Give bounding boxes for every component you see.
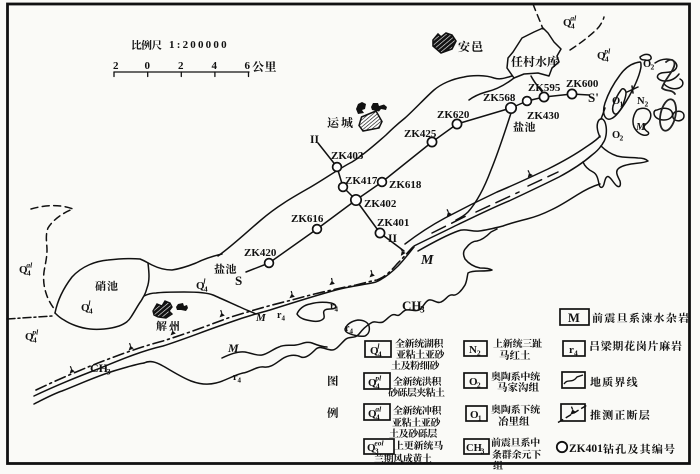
svg-text:2: 2 xyxy=(178,60,184,72)
svg-text:ZK403: ZK403 xyxy=(331,150,364,162)
svg-text:2: 2 xyxy=(620,134,624,143)
svg-text:ZK420: ZK420 xyxy=(244,247,277,259)
svg-text:M: M xyxy=(255,312,267,324)
svg-text:4: 4 xyxy=(27,269,31,278)
svg-text:3: 3 xyxy=(420,305,425,315)
svg-text:4: 4 xyxy=(238,377,242,385)
svg-text:4: 4 xyxy=(605,55,609,64)
svg-text:2: 2 xyxy=(645,100,649,109)
svg-text:M: M xyxy=(568,311,580,325)
svg-text:al: al xyxy=(26,261,33,270)
svg-text:ZK568: ZK568 xyxy=(483,92,516,104)
svg-text:S: S xyxy=(235,273,242,288)
svg-text:ZK417: ZK417 xyxy=(345,175,378,187)
svg-text:ZK430: ZK430 xyxy=(527,110,560,122)
svg-text:al: al xyxy=(375,405,382,414)
svg-text:4: 4 xyxy=(33,336,37,345)
svg-text:ZK402: ZK402 xyxy=(364,198,397,210)
svg-text:2: 2 xyxy=(477,349,481,358)
svg-text:pl: pl xyxy=(374,374,382,383)
svg-text:4: 4 xyxy=(378,350,382,359)
svg-text:4: 4 xyxy=(89,307,93,316)
svg-text:4: 4 xyxy=(376,413,380,422)
svg-text:1: 1 xyxy=(478,414,482,423)
svg-text:CH: CH xyxy=(466,443,482,454)
svg-text:2: 2 xyxy=(651,63,655,72)
svg-text:1: 1 xyxy=(620,100,624,109)
svg-text:0: 0 xyxy=(145,60,151,72)
svg-text:ZK600: ZK600 xyxy=(566,78,599,90)
svg-text:M: M xyxy=(227,341,239,355)
svg-text:4: 4 xyxy=(574,349,578,358)
svg-text:ZK425: ZK425 xyxy=(404,128,437,140)
svg-text:pl: pl xyxy=(603,47,611,56)
svg-text:ZK620: ZK620 xyxy=(437,109,470,121)
svg-text:4: 4 xyxy=(204,285,208,294)
svg-text:M: M xyxy=(420,253,434,268)
svg-text:eol: eol xyxy=(374,439,384,448)
svg-text:S': S' xyxy=(588,90,599,105)
svg-text:2: 2 xyxy=(477,381,481,390)
svg-text:3: 3 xyxy=(107,368,111,377)
svg-text:4: 4 xyxy=(376,382,380,391)
svg-text:4: 4 xyxy=(212,60,218,72)
svg-text:1:200000: 1:200000 xyxy=(169,39,229,51)
svg-text:4: 4 xyxy=(350,328,354,336)
svg-text:ZK618: ZK618 xyxy=(389,179,422,191)
svg-text:6: 6 xyxy=(245,60,251,72)
svg-text:ZK595: ZK595 xyxy=(528,82,561,94)
svg-text:M: M xyxy=(635,122,646,133)
svg-text:N: N xyxy=(469,344,477,356)
svg-text:II: II xyxy=(388,233,397,245)
svg-text:pl: pl xyxy=(31,328,39,337)
svg-text:3: 3 xyxy=(481,447,485,456)
svg-text:2: 2 xyxy=(113,60,119,72)
svg-text:4: 4 xyxy=(571,22,575,31)
svg-text:II: II xyxy=(310,134,319,146)
svg-text:al: al xyxy=(570,14,577,23)
svg-text:4: 4 xyxy=(335,306,339,314)
svg-text:4: 4 xyxy=(282,315,286,323)
svg-text:ZK401: ZK401 xyxy=(569,443,603,455)
svg-text:ZK401: ZK401 xyxy=(377,217,409,229)
svg-text:CH: CH xyxy=(402,298,422,313)
svg-text:ZK616: ZK616 xyxy=(291,213,324,225)
